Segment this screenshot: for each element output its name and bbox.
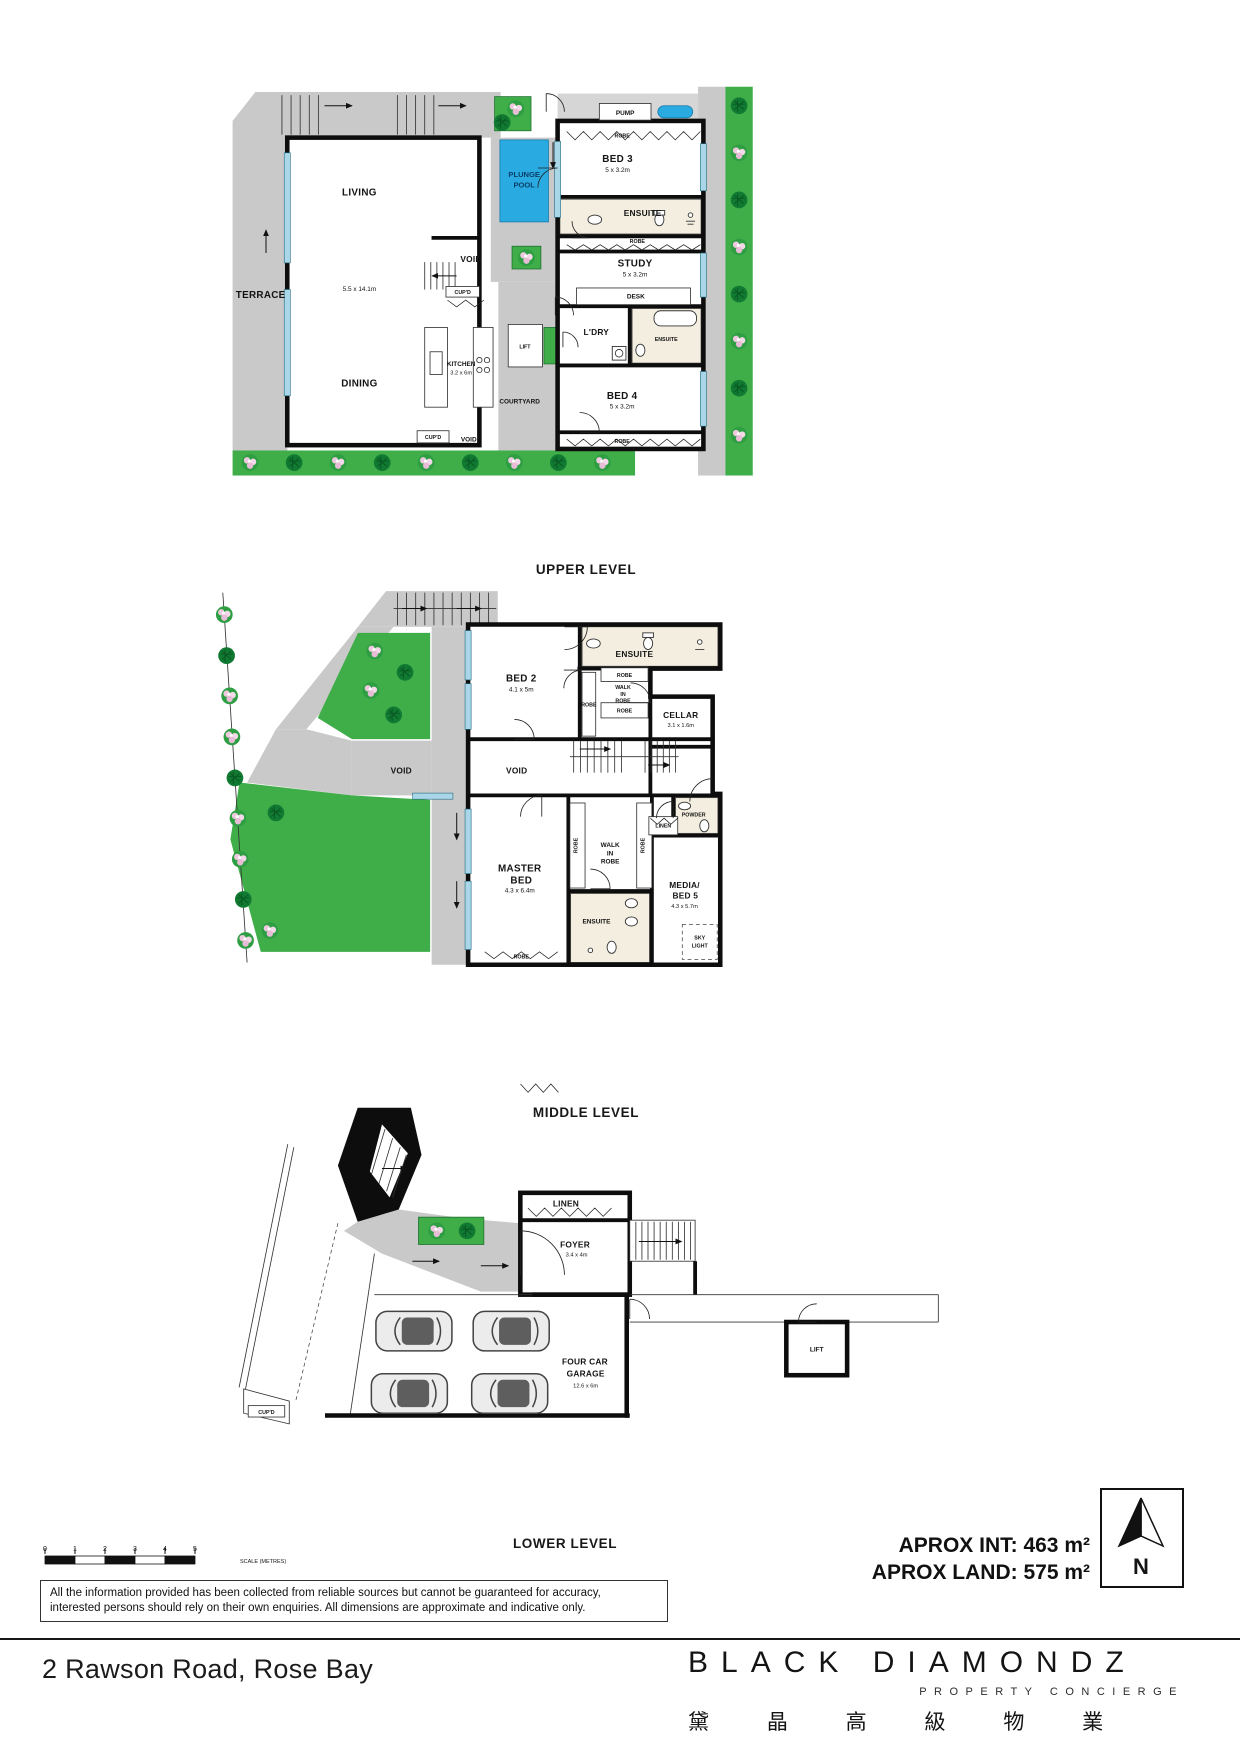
room-label-foyer: FOYER xyxy=(560,1240,590,1250)
room-dim-living: 5.5 x 14.1m xyxy=(343,286,377,293)
flower-icon xyxy=(242,454,259,471)
room-label-ensuite: ENSUITE xyxy=(624,208,662,218)
robe-label: ROBE xyxy=(614,439,630,445)
room-label-powder: POWDER xyxy=(682,813,706,819)
disclaimer: All the information provided has been co… xyxy=(40,1580,668,1622)
middle-level-plan: BED 2 4.1 x 5m ENSUITE ROBE ROBE WALK IN… xyxy=(200,585,920,1125)
brand-name: BLACK DIAMONDZ xyxy=(688,1646,1184,1680)
tree-icon xyxy=(286,454,303,471)
car-icon xyxy=(472,1374,548,1414)
robe-label: ROBE xyxy=(614,134,630,140)
tree-icon xyxy=(235,891,252,908)
flower-icon xyxy=(731,239,748,256)
flower-icon xyxy=(506,454,523,471)
room-dim-kitchen: 3.2 x 6m xyxy=(450,371,472,377)
flower-icon xyxy=(518,249,535,266)
room-label-lift: LIFT xyxy=(810,1347,824,1354)
room-label-void: VOID xyxy=(506,765,527,775)
lower-level-caption: LOWER LEVEL xyxy=(415,1536,715,1551)
tree-icon xyxy=(397,664,414,681)
robe-label: ROBE xyxy=(573,837,579,853)
flower-icon xyxy=(594,454,611,471)
floorplan-page: LIVING 5.5 x 14.1m TERRACE DINING KITCHE… xyxy=(0,0,1240,1753)
aprox-int: APROX INT: 463 m² xyxy=(760,1532,1090,1559)
tree-icon xyxy=(268,804,285,821)
room-label-courtyard: COURTYARD xyxy=(499,398,540,405)
room-label-void: VOID xyxy=(461,436,477,443)
room-label-kitchen: KITCHEN xyxy=(447,361,476,368)
room-label-ensuite: ENSUITE xyxy=(616,649,654,659)
room-label-ensuite: ENSUITE xyxy=(655,337,678,343)
tree-icon xyxy=(731,286,748,303)
walk-in-robe-label-1: WALK xyxy=(615,685,631,691)
room-label-media-1: MEDIA/ xyxy=(669,880,700,890)
flower-icon xyxy=(731,144,748,161)
robe-label: ROBE xyxy=(640,837,646,853)
desk-label: DESK xyxy=(627,294,645,301)
room-dim-study: 5 x 3.2m xyxy=(623,272,648,279)
upper-level-caption: UPPER LEVEL xyxy=(436,562,736,577)
tree-icon xyxy=(731,97,748,114)
walk-in-robe-label-1: WALK xyxy=(601,842,620,849)
lower-structure xyxy=(239,1108,520,1416)
tree-icon xyxy=(731,192,748,209)
north-arrow: N xyxy=(1100,1488,1184,1588)
linen-label: LINEN xyxy=(553,1199,579,1209)
tree-icon xyxy=(550,454,567,471)
robe-label: ROBE xyxy=(617,673,633,679)
room-label-garage-2: GARAGE xyxy=(567,1369,605,1379)
flower-icon xyxy=(230,810,247,827)
flower-icon xyxy=(366,643,383,660)
lower-cupd xyxy=(244,1389,290,1424)
tree-icon xyxy=(385,707,402,724)
scale-bar: 0 1 2 3 4 5 SCALE (METRES) xyxy=(40,1542,320,1576)
room-label-media-2: BED 5 xyxy=(672,891,698,901)
brand-subtitle: PROPERTY CONCIERGE xyxy=(688,1686,1184,1698)
area-summary: APROX INT: 463 m² APROX LAND: 575 m² xyxy=(760,1532,1090,1586)
flower-icon xyxy=(232,851,249,868)
flower-icon xyxy=(262,922,279,939)
linen-label: LINEN xyxy=(655,823,671,829)
room-dim-bed4: 5 x 3.2m xyxy=(610,404,635,411)
flower-icon xyxy=(221,688,238,705)
brand-chinese: 黛 晶 高 級 物 業 xyxy=(688,1706,1184,1736)
flower-icon xyxy=(224,729,241,746)
walk-in-robe-label-3: ROBE xyxy=(615,699,631,705)
room-label-ensuite: ENSUITE xyxy=(583,919,612,926)
disclaimer-line-1: All the information provided has been co… xyxy=(50,1586,658,1601)
room-label-cupd: CUP'D xyxy=(455,290,471,296)
flower-icon xyxy=(731,427,748,444)
room-label-terrace: TERRACE xyxy=(236,290,286,301)
pool-label-1: PLUNGE xyxy=(508,170,540,179)
room-label-garage-1: FOUR CAR xyxy=(562,1357,608,1367)
room-dim-bed2: 4.1 x 5m xyxy=(509,686,534,693)
middle-house xyxy=(468,624,720,1092)
flower-icon xyxy=(428,1222,445,1239)
room-label-void: VOID xyxy=(391,765,412,775)
room-label-cupd: CUP'D xyxy=(258,1410,274,1416)
tree-icon xyxy=(494,114,511,131)
aprox-land: APROX LAND: 575 m² xyxy=(760,1559,1090,1586)
room-dim-media: 4.3 x 5.7m xyxy=(671,904,698,910)
skylight-label-2: LIGHT xyxy=(692,943,709,949)
walk-in-robe-label-2: IN xyxy=(620,692,625,698)
disclaimer-line-2: interested persons should rely on their … xyxy=(50,1601,658,1616)
property-address: 2 Rawson Road, Rose Bay xyxy=(42,1654,373,1685)
flower-icon xyxy=(330,454,347,471)
agency-logo: BLACK DIAMONDZ PROPERTY CONCIERGE 黛 晶 高 … xyxy=(688,1646,1184,1736)
flower-icon xyxy=(507,100,524,117)
walk-in-robe-label-2: IN xyxy=(607,850,614,857)
flower-icon xyxy=(216,606,233,623)
tree-icon xyxy=(227,770,244,787)
flower-icon xyxy=(237,932,254,949)
robe-label: ROBE xyxy=(514,955,530,961)
upper-level-plan: LIVING 5.5 x 14.1m TERRACE DINING KITCHE… xyxy=(225,28,935,573)
room-label-master-1: MASTER xyxy=(498,863,541,874)
flower-icon xyxy=(363,682,380,699)
room-dim-bed3: 5 x 3.2m xyxy=(605,167,630,174)
flower-icon xyxy=(731,333,748,350)
room-dim-garage: 12.6 x 6m xyxy=(573,1383,598,1389)
lower-corridor-lift xyxy=(630,1295,939,1376)
tree-icon xyxy=(218,647,235,664)
room-label-cupd: CUP'D xyxy=(425,435,441,441)
room-label-cellar: CELLAR xyxy=(663,710,698,720)
robe-label: ROBE xyxy=(630,239,646,245)
robe-label: ROBE xyxy=(581,703,597,709)
car-icon xyxy=(376,1311,452,1351)
room-label-lift: LIFT xyxy=(519,345,531,351)
footer-divider xyxy=(0,1638,1240,1640)
lower-level-plan: LINEN FOYER 3.4 x 4m FOUR CAR GARAGE 12.… xyxy=(230,1100,1180,1560)
flower-icon xyxy=(418,454,435,471)
walk-in-robe-label-3: ROBE xyxy=(601,859,620,866)
room-label-dining: DINING xyxy=(341,379,377,390)
skylight-label-1: SKY xyxy=(694,936,705,942)
car-icon xyxy=(371,1374,447,1414)
tree-icon xyxy=(462,454,479,471)
robe-label: ROBE xyxy=(617,709,633,715)
room-label-study: STUDY xyxy=(618,259,653,270)
room-label-void: VOID xyxy=(460,254,481,264)
room-label-bed4: BED 4 xyxy=(607,391,638,402)
car-icon xyxy=(473,1311,549,1351)
room-label-bed2: BED 2 xyxy=(506,673,537,684)
tree-icon xyxy=(731,380,748,397)
room-dim-foyer: 3.4 x 4m xyxy=(566,1253,588,1259)
room-dim-master: 4.3 x 6.4m xyxy=(505,888,535,895)
pool-label-2: POOL xyxy=(513,181,535,190)
room-label-living: LIVING xyxy=(342,187,377,198)
room-label-bed3: BED 3 xyxy=(602,154,633,165)
room-label-master-2: BED xyxy=(510,875,532,886)
tree-icon xyxy=(374,454,391,471)
room-label-ldry: L'DRY xyxy=(584,327,610,337)
tree-icon xyxy=(459,1222,476,1239)
north-letter: N xyxy=(1133,1554,1149,1579)
room-label-pump: PUMP xyxy=(616,110,635,117)
room-dim-cellar: 3.1 x 1.6m xyxy=(667,723,694,729)
scale-caption: SCALE (METRES) xyxy=(240,1559,286,1565)
lower-foyer-block xyxy=(520,1193,695,1295)
